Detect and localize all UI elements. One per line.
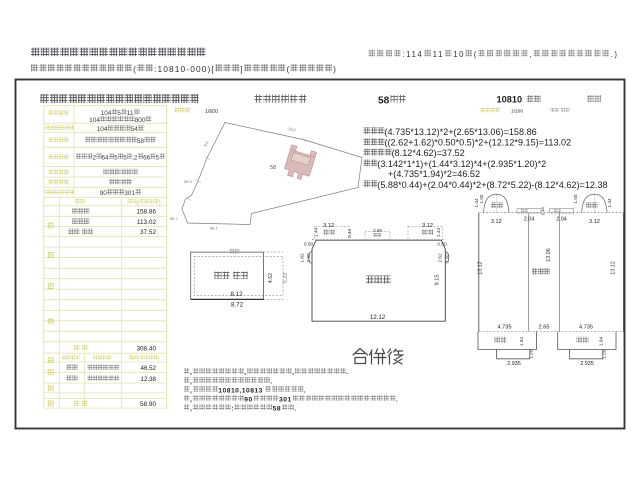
svg-text:13.12: 13.12: [478, 261, 484, 275]
svg-text:1.44: 1.44: [313, 228, 319, 238]
svg-text:,: ,: [530, 50, 534, 59]
svg-text:((2.62+1.62)*0.50*0.5)*2+(12.1: ((2.62+1.62)*0.50*0.5)*2+(12.12*9.15)=11…: [385, 138, 572, 148]
svg-text:301: 301: [124, 190, 135, 197]
svg-text:10810,10813: 10810,10813: [218, 387, 263, 394]
svg-text:58-7: 58-7: [170, 217, 178, 221]
svg-text:37.52: 37.52: [140, 229, 156, 236]
svg-text:3.12: 3.12: [422, 223, 433, 229]
svg-text:.: .: [346, 369, 348, 376]
svg-text:(4.735*13.12)*2+(2.65*13.06)=1: (4.735*13.12)*2+(2.65*13.06)=158.86: [385, 127, 537, 137]
svg-text:1.44: 1.44: [474, 198, 479, 207]
svg-text:58: 58: [273, 406, 281, 413]
svg-text:2.62: 2.62: [306, 253, 312, 263]
svg-text:58-1: 58-1: [210, 227, 218, 231]
svg-text:2.62: 2.62: [438, 253, 444, 263]
svg-text:4.62: 4.62: [268, 273, 274, 283]
svg-text:3.12: 3.12: [323, 223, 334, 229]
svg-text:1.62: 1.62: [444, 253, 450, 263]
svg-text:0.44: 0.44: [347, 229, 352, 238]
svg-text:,: ,: [190, 406, 192, 413]
svg-text:11: 11: [433, 50, 444, 59]
svg-text:58: 58: [137, 138, 145, 145]
svg-text:): ): [333, 64, 337, 74]
svg-text:104: 104: [97, 126, 108, 133]
svg-text:158.86: 158.86: [136, 209, 156, 216]
svg-text:5: 5: [117, 110, 121, 117]
svg-text::: :: [231, 406, 234, 413]
svg-text:,: ,: [244, 369, 246, 376]
svg-text:90: 90: [100, 190, 108, 197]
svg-text:308.40: 308.40: [136, 345, 156, 352]
svg-text:5.22: 5.22: [283, 273, 289, 283]
svg-text:2.04: 2.04: [556, 217, 567, 223]
svg-text:,: ,: [190, 369, 192, 376]
svg-text:5: 5: [156, 154, 160, 161]
svg-text:46.52: 46.52: [141, 365, 157, 372]
svg-text:]: ]: [240, 64, 243, 74]
svg-text:10: 10: [453, 50, 465, 59]
svg-text:2.935: 2.935: [580, 361, 594, 367]
svg-text:(3.142*1*1)+(1.44*3.12)*4+(2.9: (3.142*1*1)+(1.44*3.12)*4+(2.935*1.20)*2: [377, 159, 546, 169]
svg-text:1/600: 1/600: [205, 109, 218, 115]
svg-text:5: 5: [114, 154, 118, 161]
svg-text:5: 5: [123, 154, 127, 161]
svg-text:1.20: 1.20: [529, 349, 534, 358]
svg-text:,: ,: [292, 369, 294, 376]
svg-text:.: .: [396, 396, 398, 403]
svg-text:1.00: 1.00: [479, 194, 484, 203]
svg-text:9.15: 9.15: [435, 275, 441, 286]
svg-text:1.20: 1.20: [602, 349, 607, 358]
svg-text:.: .: [294, 406, 296, 413]
svg-text:58: 58: [270, 165, 276, 171]
svg-text:,: ,: [190, 378, 192, 385]
svg-text:1.94: 1.94: [519, 337, 525, 347]
svg-text:3.12: 3.12: [589, 219, 600, 225]
svg-text:4.735: 4.735: [579, 324, 593, 330]
svg-text:3.12: 3.12: [491, 219, 502, 225]
svg-text:10810: 10810: [497, 95, 523, 105]
svg-text:2.935: 2.935: [507, 361, 521, 367]
svg-text:1.62: 1.62: [299, 253, 305, 263]
svg-text:1.00: 1.00: [573, 194, 578, 203]
svg-text:12.38: 12.38: [141, 376, 157, 383]
svg-text:,: ,: [190, 387, 192, 394]
svg-text:12.12: 12.12: [370, 314, 386, 321]
svg-text:,2: ,2: [132, 154, 138, 161]
svg-text:2.88: 2.88: [373, 228, 382, 233]
svg-text:58: 58: [378, 95, 390, 106]
svg-text:1.44: 1.44: [436, 228, 442, 238]
svg-text:8.72: 8.72: [231, 302, 244, 309]
svg-text:): ): [157, 356, 159, 362]
svg-text:2.04: 2.04: [524, 217, 535, 223]
svg-text:2.65: 2.65: [539, 324, 550, 330]
svg-text:2: 2: [93, 154, 97, 161]
svg-text:+(4.735*1.94)*2=46.52: +(4.735*1.94)*2=46.52: [388, 169, 480, 179]
svg-text:58-9: 58-9: [184, 180, 192, 184]
svg-text:9.8: 9.8: [203, 141, 209, 148]
svg-text:8.12: 8.12: [230, 291, 243, 298]
svg-text:1/200: 1/200: [511, 109, 523, 115]
svg-text:54: 54: [131, 126, 139, 133]
svg-text:11: 11: [127, 110, 134, 117]
svg-text:.: .: [304, 387, 306, 394]
svg-text::10810-000)[: :10810-000)[: [154, 64, 215, 74]
svg-text:(: (: [138, 356, 140, 362]
svg-text:13.06: 13.06: [546, 248, 552, 262]
svg-text:800: 800: [135, 117, 146, 124]
svg-text:(5.88*0.44)+(2.04*0.44)*2+(8.7: (5.88*0.44)+(2.04*0.44)*2+(8.72*5.22)-(8…: [377, 180, 607, 190]
svg-text:90: 90: [244, 396, 252, 403]
svg-text:0.50: 0.50: [437, 241, 447, 247]
svg-text:0.50: 0.50: [304, 241, 314, 247]
svg-text:(: (: [287, 64, 291, 74]
svg-text:13.12: 13.12: [611, 261, 617, 275]
svg-text:113.02: 113.02: [137, 219, 157, 226]
svg-text:(8.12*4.62)=37.52: (8.12*4.62)=37.52: [392, 148, 465, 158]
svg-text:104: 104: [89, 117, 100, 124]
svg-text:): ): [159, 199, 161, 206]
svg-text:58.90: 58.90: [140, 401, 156, 408]
svg-text:66: 66: [143, 154, 151, 161]
svg-text:(: (: [474, 50, 478, 59]
svg-text:(: (: [133, 64, 137, 74]
svg-text:.: .: [270, 378, 272, 385]
svg-text:4.735: 4.735: [498, 324, 512, 330]
svg-text:0.44: 0.44: [541, 206, 546, 215]
svg-text:(: (: [137, 199, 140, 206]
svg-text::114: :114: [402, 50, 423, 59]
svg-text:1.94: 1.94: [599, 337, 605, 347]
svg-text:,: ,: [190, 396, 192, 403]
svg-text:104: 104: [101, 110, 112, 117]
svg-text::: :: [190, 108, 192, 115]
svg-text:.): .): [611, 50, 619, 59]
svg-text:301: 301: [279, 396, 292, 403]
svg-text:25.9: 25.9: [288, 127, 296, 132]
svg-text:1.44: 1.44: [607, 198, 612, 207]
svg-text:64: 64: [102, 154, 110, 161]
